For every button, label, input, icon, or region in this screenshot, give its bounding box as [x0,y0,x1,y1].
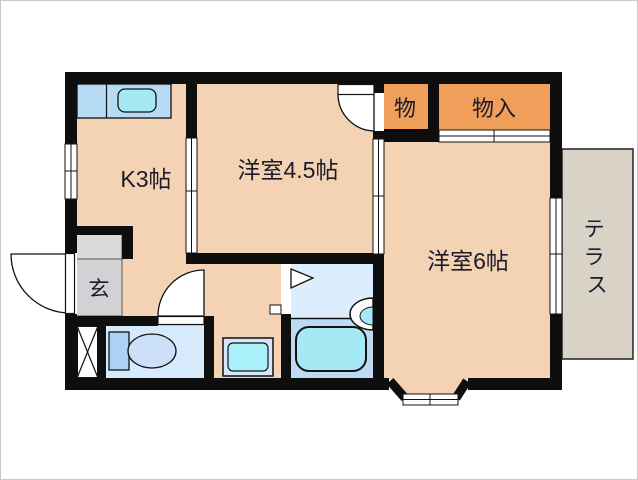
sliding-door-kitchen-45 [186,138,197,253]
wall-segment [373,84,384,93]
window-symbol-terrace [550,198,562,314]
entrance-step [76,234,122,259]
label-kitchen: K3帖 [120,166,171,192]
toilet-icon [109,332,176,370]
sliding-door-45-6 [373,139,384,254]
kitchen-sink-icon [118,89,156,112]
kitchen-counter [77,84,171,118]
wall-segment [468,378,562,390]
wall-segment [122,226,133,259]
floor-plan: K3帖 洋室4.5帖 洋室6帖 物 物入 玄 テ ラ ス [0,0,638,480]
wall-segment [550,314,562,378]
wall-segment [204,316,214,378]
wall-segment [186,84,197,138]
floor-plan-svg: K3帖 洋室4.5帖 洋室6帖 物 物入 玄 テ ラ ス [1,1,638,480]
wall-segment [65,378,389,390]
wall-segment [65,84,77,144]
wall-segment [65,316,158,326]
bathtub-icon [296,327,366,371]
label-entrance: 玄 [89,278,110,301]
label-terrace: テ ラ ス [584,218,611,297]
wall-segment [373,254,384,378]
label-storage-closet: 物入 [472,96,516,121]
wall-segment [550,84,562,198]
shoe-cabinet-x-icon [77,326,98,378]
wall-segment [281,314,291,378]
wall-segment [428,84,439,129]
bay-window-glass [403,394,458,405]
entrance-door [11,253,77,314]
sliding-door-closet [439,130,550,142]
wall-segment [65,72,562,84]
window-symbol-left [65,144,77,199]
label-storage-small: 物 [394,96,416,121]
label-western-room-45: 洋室4.5帖 [238,157,339,183]
label-western-room-6: 洋室6帖 [427,248,509,274]
washing-machine-pan-icon [223,338,273,376]
wall-segment [98,326,106,378]
wall-segment [186,253,384,264]
